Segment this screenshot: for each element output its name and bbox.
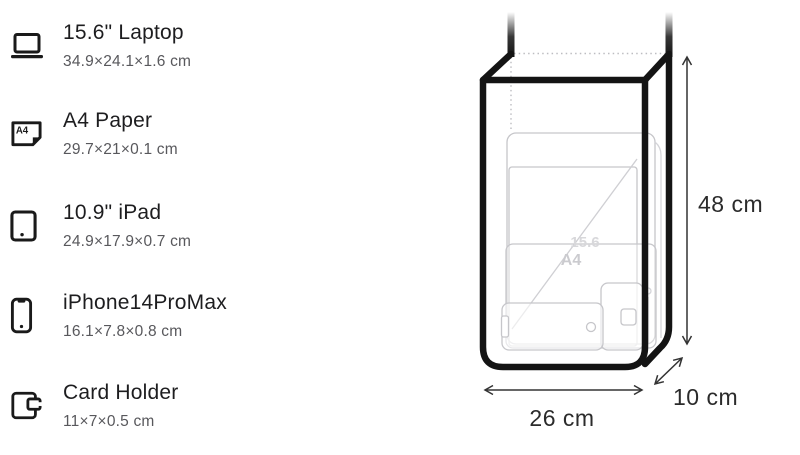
ghost-card-holder-tab — [621, 309, 636, 325]
bag-dimension-diagram: 15.6 A4 48 cm 26 cm 10 cm — [0, 0, 800, 455]
depth-dimension-label: 10 cm — [673, 384, 738, 410]
bag-top-right-rim — [645, 54, 669, 80]
height-dimension-label: 48 cm — [698, 191, 763, 217]
ghost-laptop-label: 15.6 — [570, 234, 599, 251]
ghost-iphone-button — [502, 316, 509, 337]
ghost-iphone-camera — [587, 323, 596, 332]
width-dimension-label: 26 cm — [529, 405, 594, 431]
size-comparison-infographic: 15.6" Laptop 34.9×24.1×1.6 cm A4 A4 Pape… — [0, 0, 800, 455]
depth-arrow — [655, 358, 682, 384]
bag-right-strap — [666, 12, 673, 57]
ghost-a4-label: A4 — [561, 252, 582, 269]
bag-top-left-rim — [483, 54, 511, 80]
bag-left-strap — [508, 12, 515, 57]
